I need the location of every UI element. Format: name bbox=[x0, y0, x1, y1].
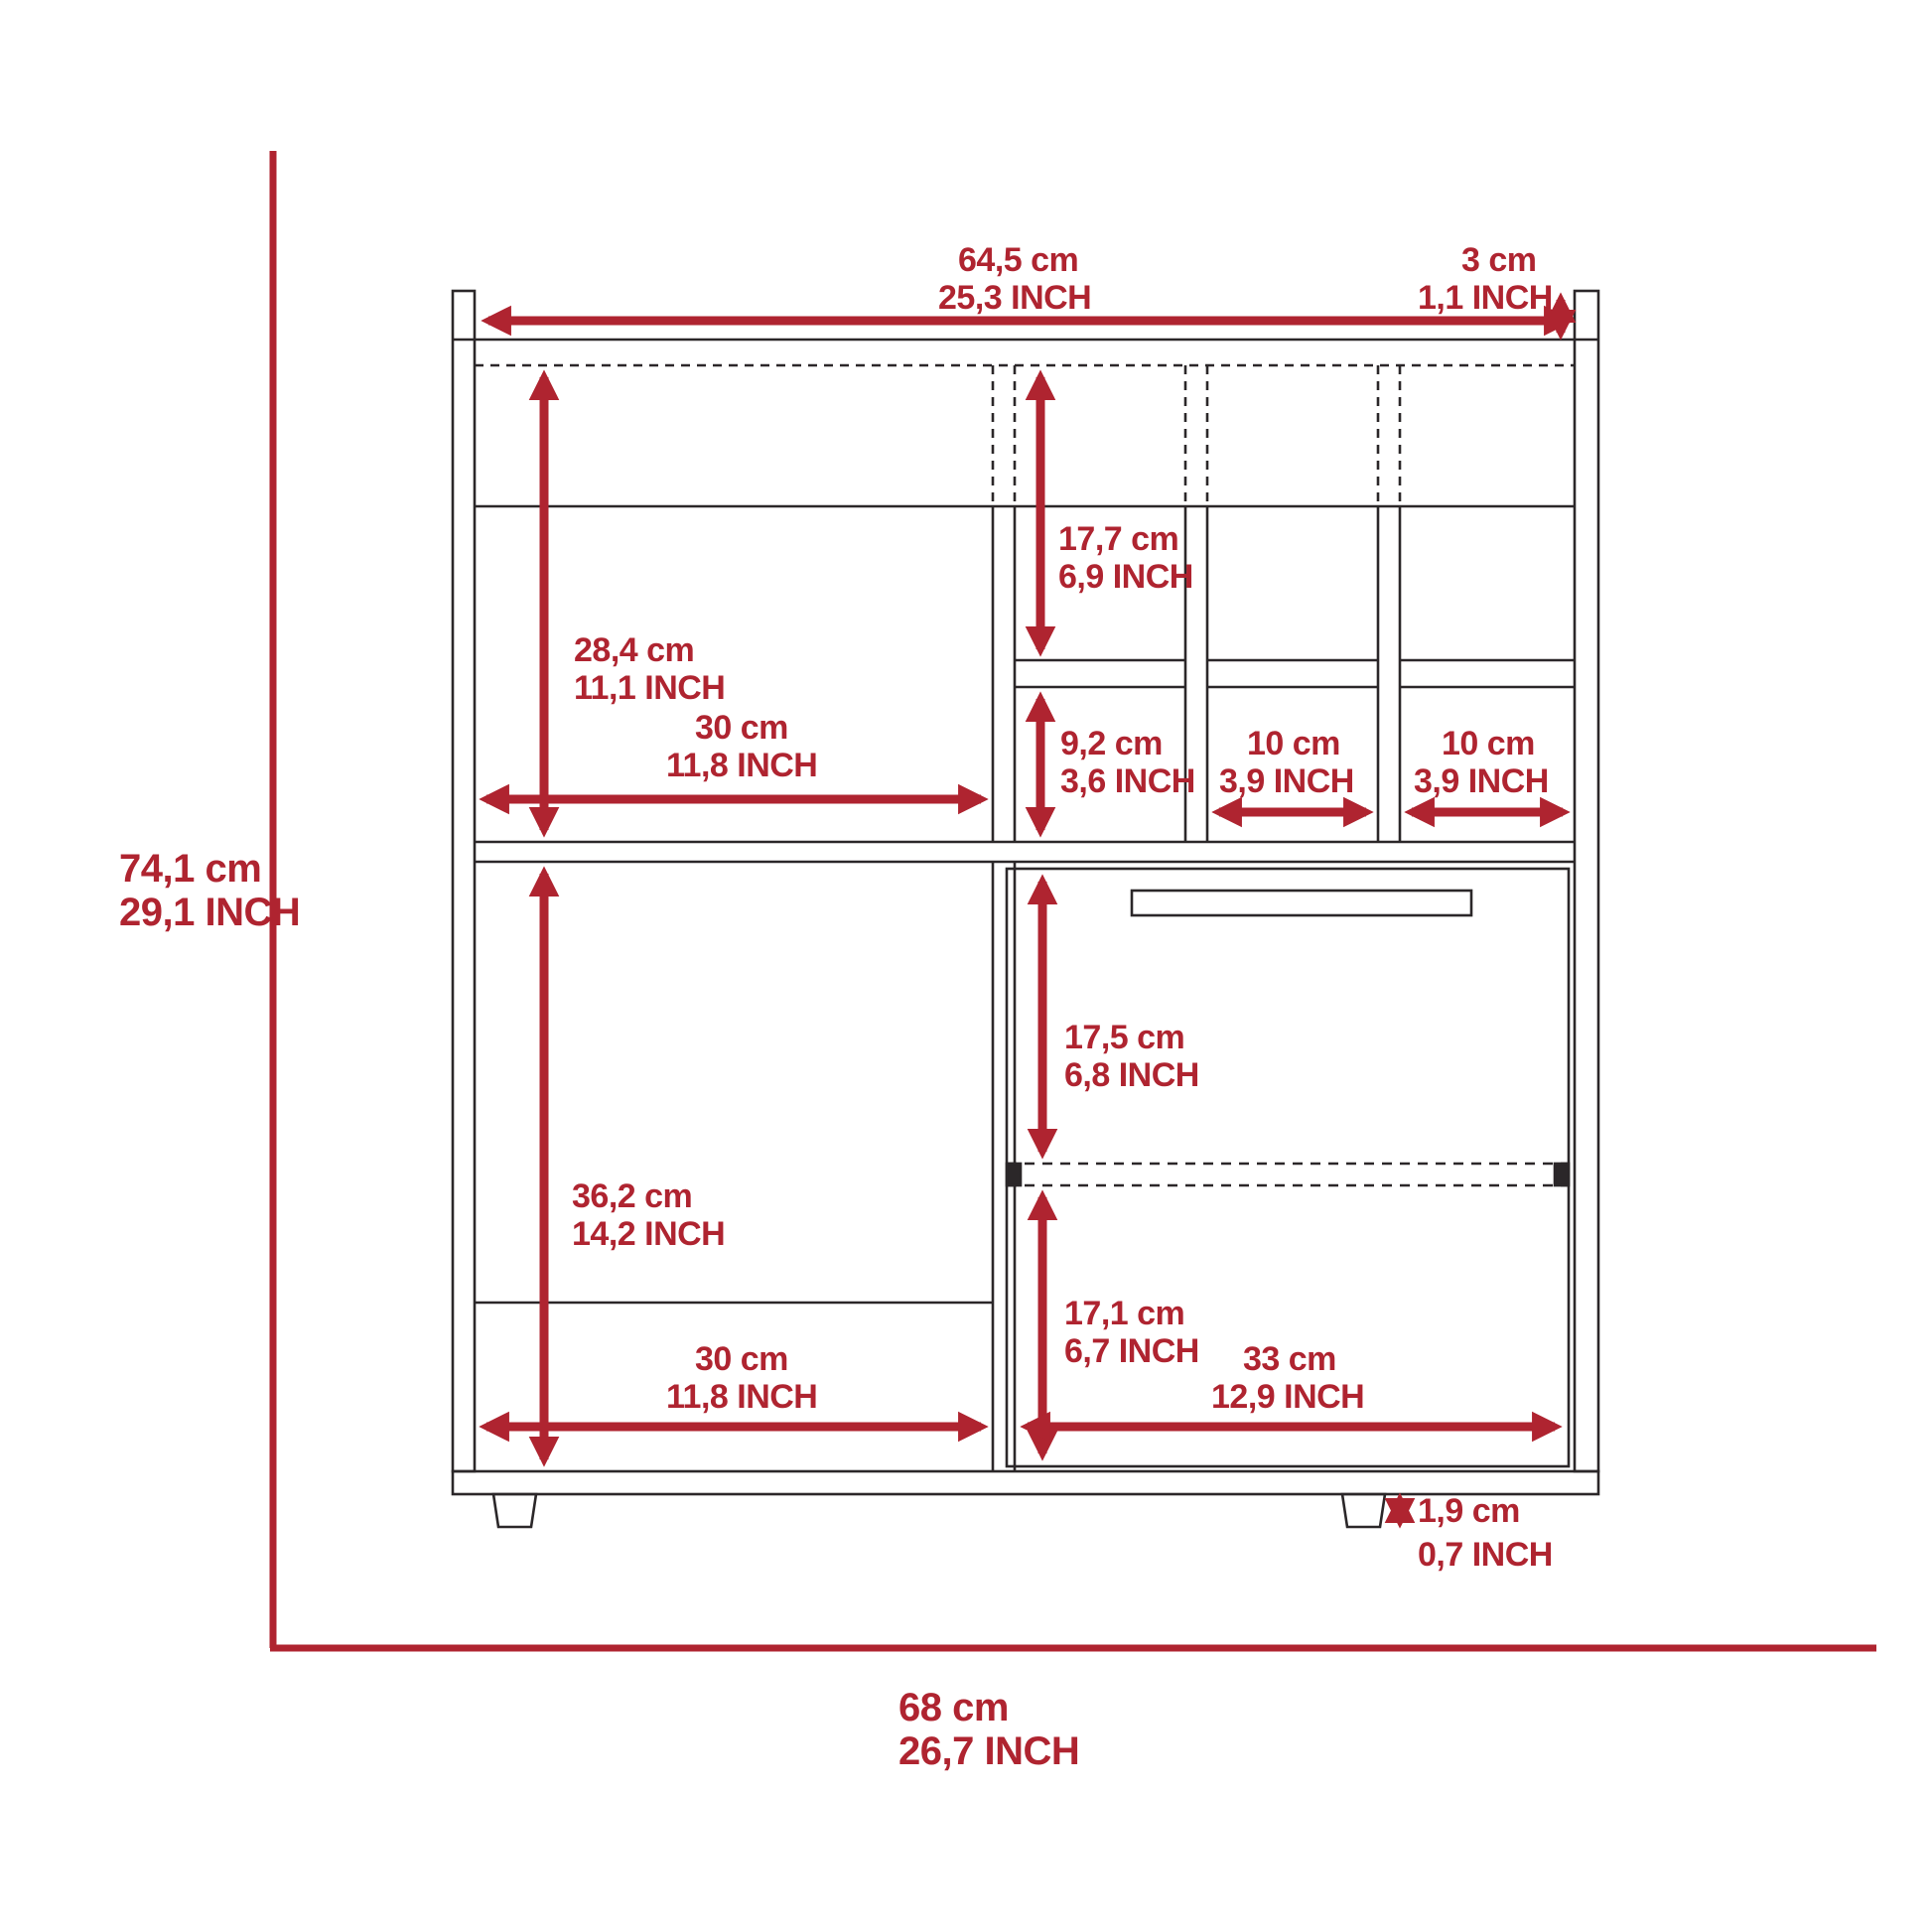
dim-left-top-height-cm: 28,4 cm bbox=[574, 631, 694, 669]
door-hinge-left bbox=[1007, 1164, 1021, 1185]
dim-cubby-mid-width-cm: 10 cm bbox=[1247, 725, 1340, 762]
dim-label-left-bottom-width: 30 cm 11,8 INCH bbox=[695, 1340, 788, 1378]
dim-cubby-top-height-cm: 17,7 cm bbox=[1058, 520, 1178, 558]
dim-overall-height-cm: 74,1 cm bbox=[119, 847, 261, 891]
dim-label-left-top-height: 28,4 cm 11,1 INCH bbox=[574, 631, 694, 669]
dim-cubby-bottom-height-cm: 9,2 cm bbox=[1060, 725, 1163, 762]
cubby-mid-shelf bbox=[1015, 660, 1575, 687]
door-hinge-right bbox=[1555, 1164, 1569, 1185]
dim-left-bottom-width-cm: 30 cm bbox=[695, 1340, 788, 1378]
left-post bbox=[453, 291, 475, 1471]
door-handle-slot bbox=[1132, 891, 1471, 915]
dim-cubby-right-width-inch: 3,9 INCH bbox=[1414, 762, 1549, 800]
right-post bbox=[1575, 291, 1598, 1471]
dim-foot-height-inch: 0,7 INCH bbox=[1418, 1533, 1553, 1577]
dim-label-overall-width: 68 cm 26,7 INCH bbox=[898, 1686, 1009, 1729]
dim-left-bottom-width-inch: 11,8 INCH bbox=[666, 1378, 817, 1416]
dimension-arrows bbox=[486, 300, 1567, 1521]
dim-label-foot-height: 1,9 cm 0,7 INCH bbox=[1418, 1489, 1520, 1533]
dim-door-top-height-inch: 6,8 INCH bbox=[1064, 1056, 1199, 1094]
door-fold-dashed-lines bbox=[1007, 1164, 1569, 1185]
dim-label-cubby-bottom-height: 9,2 cm 3,6 INCH bbox=[1060, 725, 1163, 762]
dim-label-overall-height: 74,1 cm 29,1 INCH bbox=[119, 847, 261, 891]
dim-label-cubby-top-height: 17,7 cm 6,9 INCH bbox=[1058, 520, 1178, 558]
dim-left-bottom-height-cm: 36,2 cm bbox=[572, 1177, 692, 1215]
cabinet-outline bbox=[453, 291, 1598, 1527]
right-foot bbox=[1342, 1494, 1385, 1527]
dim-cubby-bottom-height-inch: 3,6 INCH bbox=[1060, 762, 1195, 800]
dim-label-left-bottom-height: 36,2 cm 14,2 INCH bbox=[572, 1177, 692, 1215]
dim-label-left-top-width: 30 cm 11,8 INCH bbox=[695, 709, 788, 747]
dim-top-thickness-inch: 1,1 INCH bbox=[1418, 279, 1553, 317]
dim-top-width-cm: 64,5 cm bbox=[958, 241, 1078, 279]
dim-left-top-height-inch: 11,1 INCH bbox=[574, 669, 725, 707]
dimension-diagram-canvas: 64,5 cm 25,3 INCH 3 cm 1,1 INCH 17,7 cm … bbox=[0, 0, 1932, 1932]
dim-label-door-top-height: 17,5 cm 6,8 INCH bbox=[1064, 1019, 1184, 1056]
dim-foot-height-cm: 1,9 cm bbox=[1418, 1489, 1520, 1533]
dim-left-top-width-cm: 30 cm bbox=[695, 709, 788, 747]
dim-overall-height-inch: 29,1 INCH bbox=[119, 891, 300, 934]
dim-label-cubby-right-width: 10 cm 3,9 INCH bbox=[1442, 725, 1535, 762]
dim-door-bottom-height-cm: 17,1 cm bbox=[1064, 1295, 1184, 1332]
dim-cubby-top-height-inch: 6,9 INCH bbox=[1058, 558, 1193, 596]
dim-left-bottom-height-inch: 14,2 INCH bbox=[572, 1215, 725, 1253]
dim-door-top-height-cm: 17,5 cm bbox=[1064, 1019, 1184, 1056]
dim-cubby-right-width-cm: 10 cm bbox=[1442, 725, 1535, 762]
dim-label-door-bottom-height: 17,1 cm 6,7 INCH bbox=[1064, 1295, 1184, 1332]
left-foot bbox=[493, 1494, 536, 1527]
dim-door-width-cm: 33 cm bbox=[1243, 1340, 1336, 1378]
dim-overall-width-cm: 68 cm bbox=[898, 1686, 1009, 1729]
dim-top-width-inch: 25,3 INCH bbox=[938, 279, 1091, 317]
dim-label-top-width: 64,5 cm 25,3 INCH bbox=[958, 241, 1078, 279]
dim-cubby-mid-width-inch: 3,9 INCH bbox=[1219, 762, 1354, 800]
hidden-divider-edges bbox=[993, 365, 1400, 506]
dim-door-bottom-height-inch: 6,7 INCH bbox=[1064, 1332, 1199, 1370]
dim-label-top-thickness: 3 cm 1,1 INCH bbox=[1461, 241, 1537, 279]
dim-label-door-width: 33 cm 12,9 INCH bbox=[1243, 1340, 1336, 1378]
dim-left-top-width-inch: 11,8 INCH bbox=[666, 747, 817, 784]
dim-overall-width-inch: 26,7 INCH bbox=[898, 1729, 1079, 1773]
dim-top-thickness-cm: 3 cm bbox=[1461, 241, 1537, 279]
dim-door-width-inch: 12,9 INCH bbox=[1211, 1378, 1364, 1416]
dim-label-cubby-mid-width: 10 cm 3,9 INCH bbox=[1247, 725, 1340, 762]
